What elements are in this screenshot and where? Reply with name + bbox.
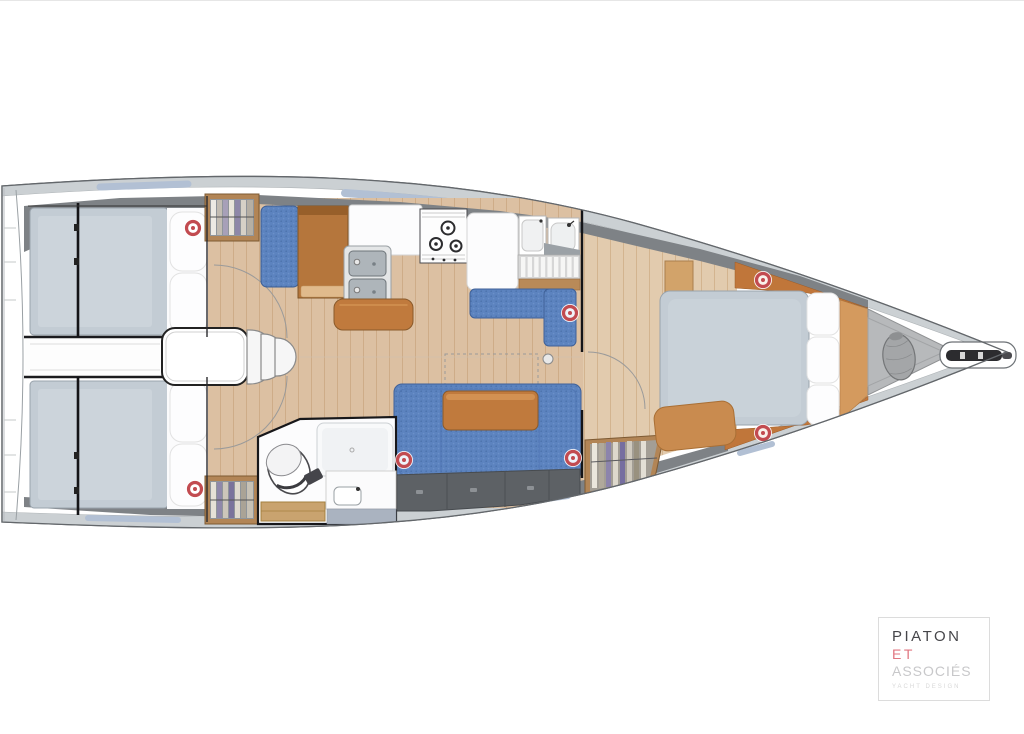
galley-wood-trim bbox=[519, 279, 580, 290]
saloon-table bbox=[443, 391, 538, 430]
under-settee-lockers bbox=[393, 469, 580, 511]
yacht-floorplan-page: PIATON ET ASSOCIÉS YACHT DESIGN bbox=[0, 0, 1024, 734]
nav-seat bbox=[261, 206, 299, 287]
chart-table-seat bbox=[301, 286, 345, 297]
bedside-cabinet bbox=[665, 261, 693, 294]
pillow bbox=[170, 444, 207, 506]
hatch-icon bbox=[395, 451, 413, 469]
hatch-icon bbox=[564, 449, 582, 467]
galley-sink-small bbox=[519, 216, 546, 255]
mattress-sheen bbox=[668, 299, 801, 417]
heads-bathroom bbox=[258, 417, 396, 524]
wardrobe-aft-starboard bbox=[205, 194, 259, 241]
hatch-icon bbox=[754, 271, 772, 289]
logo-line-2: ET bbox=[892, 646, 989, 663]
mattress-sheen bbox=[38, 216, 152, 327]
galley-sideboard bbox=[334, 299, 413, 330]
galley-fridge-counter bbox=[467, 213, 518, 290]
pillow bbox=[807, 293, 839, 335]
pillow bbox=[170, 273, 207, 333]
wardrobe-forward bbox=[585, 435, 664, 497]
mattress-sheen bbox=[38, 389, 152, 500]
galley-stove bbox=[420, 209, 467, 263]
boat-floorplan-drawing bbox=[0, 0, 1024, 734]
logo-line-1: PIATON bbox=[892, 628, 989, 646]
galley-drawers bbox=[518, 255, 580, 279]
wardrobe-aft-port bbox=[205, 476, 259, 524]
forward-seat bbox=[653, 400, 737, 452]
hatch-icon bbox=[561, 304, 579, 322]
interior bbox=[4, 188, 956, 524]
nav-station bbox=[261, 206, 348, 298]
heads-floor-drawers bbox=[261, 502, 325, 521]
pillow bbox=[807, 337, 839, 383]
shower bbox=[317, 423, 393, 476]
hatch-icon bbox=[754, 424, 772, 442]
pillow bbox=[807, 385, 839, 425]
galley-double-sink bbox=[344, 246, 391, 306]
logo-tagline: YACHT DESIGN bbox=[892, 683, 989, 691]
anchor-roller bbox=[946, 350, 1002, 361]
logo-line-3: ASSOCIÉS bbox=[892, 663, 989, 680]
engine-box bbox=[162, 328, 248, 385]
logo-piaton-et-associes: PIATON ET ASSOCIÉS YACHT DESIGN bbox=[878, 617, 990, 701]
chart-table bbox=[298, 206, 348, 298]
chart-table-rail bbox=[298, 206, 348, 215]
mast-post bbox=[543, 354, 553, 364]
pillow bbox=[170, 382, 207, 442]
hatch-icon bbox=[184, 219, 202, 237]
hatch-icon bbox=[186, 480, 204, 498]
vanity-sink bbox=[326, 471, 396, 524]
